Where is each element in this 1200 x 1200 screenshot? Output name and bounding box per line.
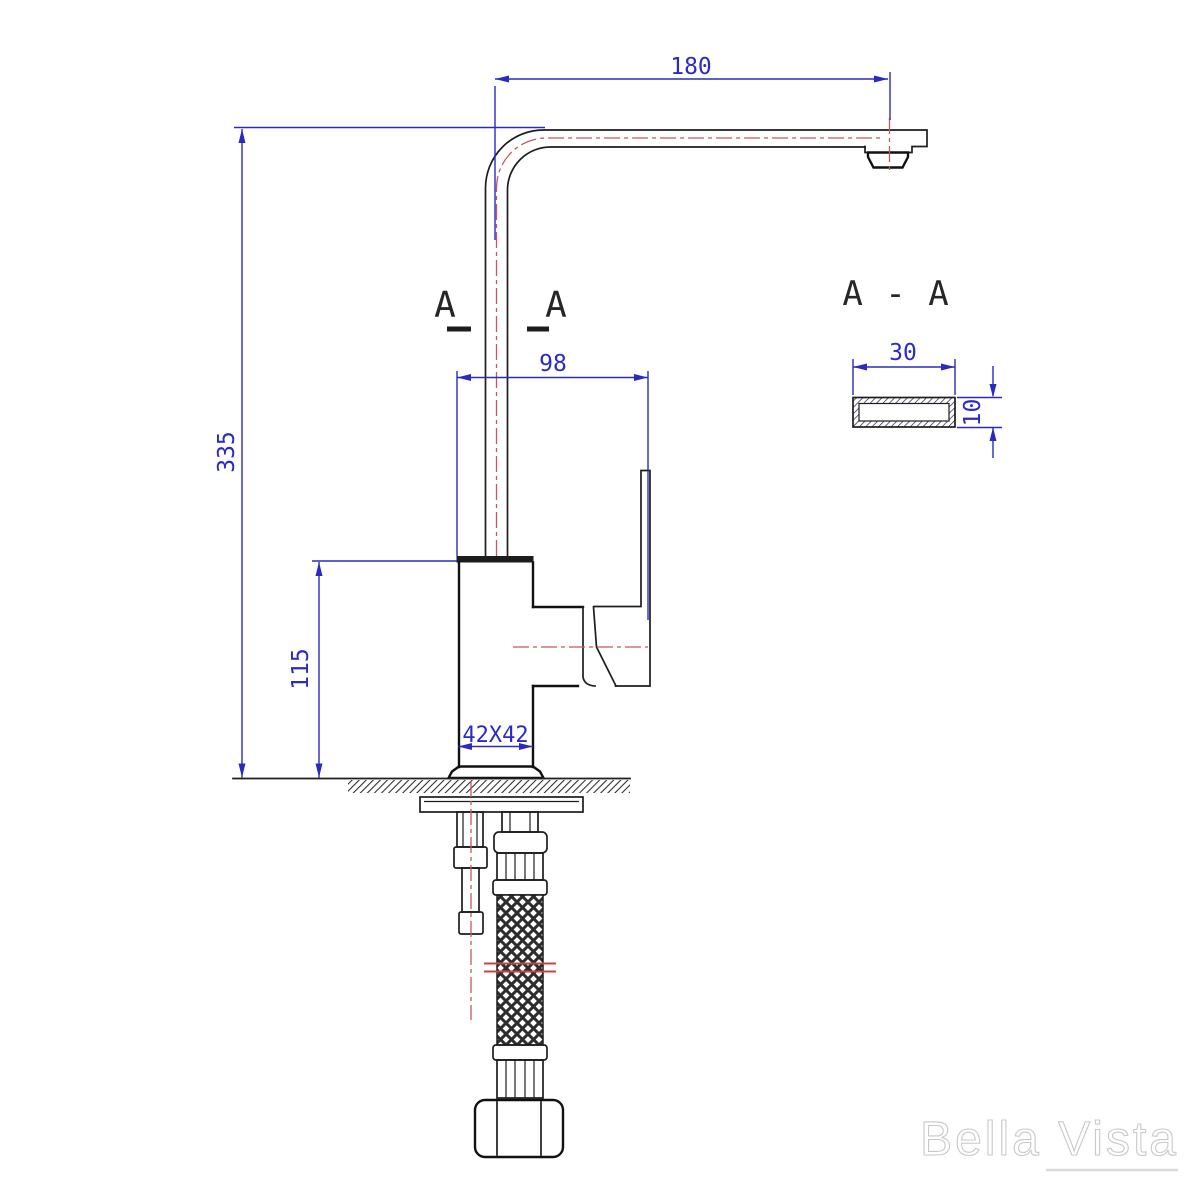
dim-label-10: 10 (960, 399, 986, 427)
spout-centerline (497, 138, 885, 556)
hose-ribs-top (497, 853, 543, 880)
deck-hatch (348, 780, 630, 793)
hose-end-nut (475, 1100, 563, 1157)
hose-collar-top (494, 832, 547, 853)
section-marker-a-right: A (527, 285, 567, 332)
dimension-10: 10 (957, 366, 1002, 458)
technical-drawing-page: 180 335 98 115 42X42 A A (0, 0, 1200, 1200)
under-sink-plate (420, 797, 583, 812)
body-top-plate (457, 556, 534, 563)
dim-label-98: 98 (539, 351, 567, 377)
faucet-outline (233, 130, 927, 1157)
base-flange (449, 767, 544, 779)
dim-label-335: 335 (214, 431, 240, 473)
dimension-115: 115 (288, 561, 457, 778)
spout-arm (486, 130, 928, 556)
dim-label-42x42: 42X42 (462, 723, 528, 748)
dim-label-115: 115 (288, 648, 314, 690)
faucet-dimension-drawing: 180 335 98 115 42X42 A A (0, 0, 1200, 1200)
dim-label-30: 30 (889, 340, 917, 366)
spout-aerator (868, 153, 908, 168)
spout-cross-section (853, 398, 955, 428)
section-view-a-a: A - A 30 10 (842, 274, 1002, 458)
section-letter-left: A (434, 285, 456, 326)
dim-label-180: 180 (670, 54, 712, 80)
section-letter-right: A (545, 285, 567, 326)
hose-braided-section (497, 895, 543, 1045)
hose-ribs-bottom (497, 1060, 543, 1098)
section-marker-a-left: A (434, 285, 471, 332)
handle-lever (583, 471, 650, 687)
dimension-30: 30 (853, 340, 955, 395)
section-title: A - A (842, 274, 949, 314)
mounting-deck (233, 779, 630, 794)
dimension-42x42: 42X42 (458, 723, 533, 750)
supply-hose (475, 812, 563, 1157)
watermark: Bella Vista (920, 1113, 1179, 1170)
brand-watermark: Bella Vista (920, 1113, 1179, 1166)
